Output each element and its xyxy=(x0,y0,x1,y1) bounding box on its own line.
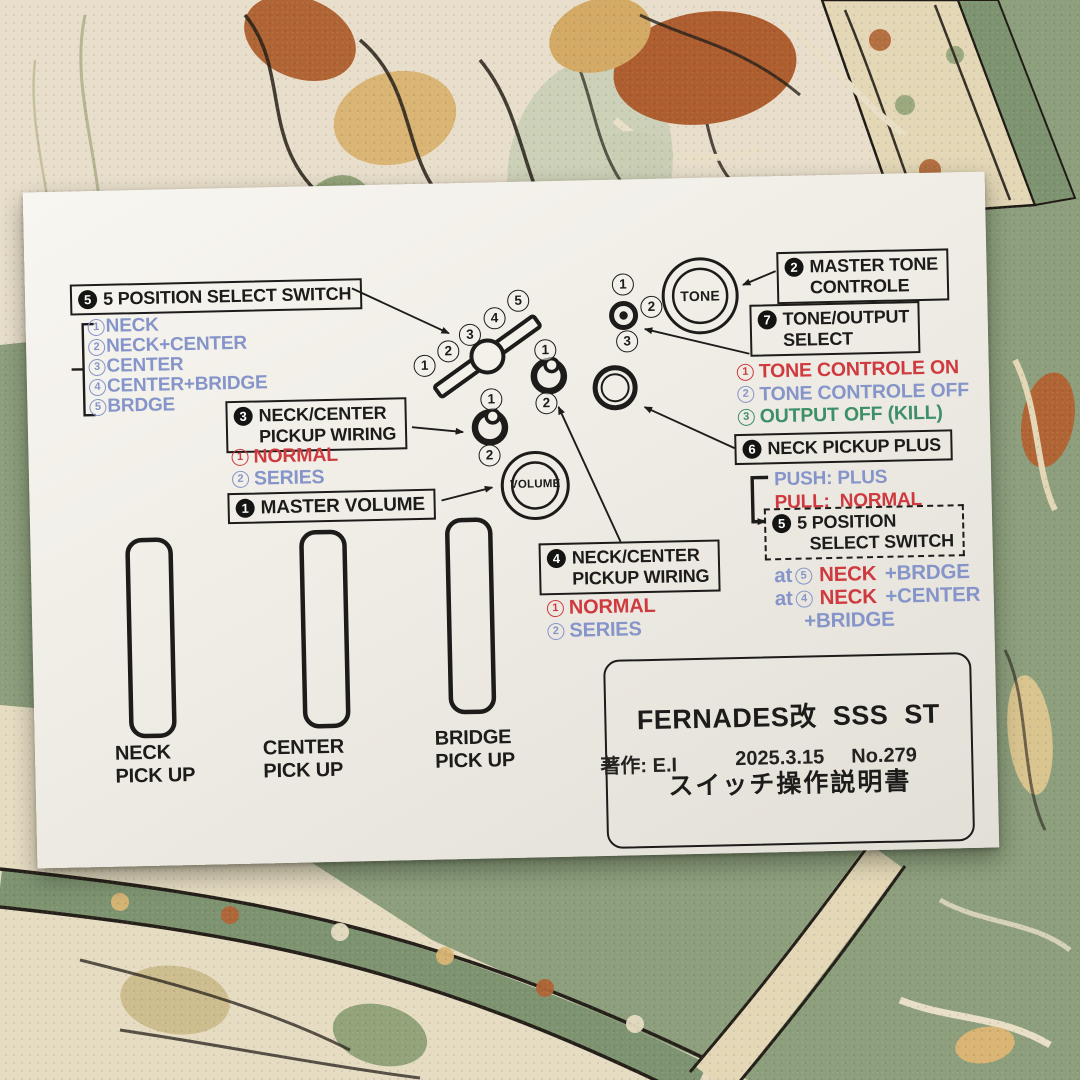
list-item: 2SERIES xyxy=(547,618,656,643)
pickup-label-line: NECK xyxy=(115,741,195,766)
list-item-text: BRDGE xyxy=(107,395,175,416)
label-text: TONE/OUTPUT xyxy=(782,306,909,330)
credit-number: No.279 xyxy=(851,744,917,768)
volume-knob-label: VOLUME xyxy=(495,478,575,492)
badge-4-icon: 4 xyxy=(547,549,566,568)
list-item-text: PUSH: PLUS xyxy=(774,466,888,491)
label-box-neck-pickup-plus: 6 NECK PICKUP PLUS xyxy=(734,429,952,465)
combo-rest: +BRDGE xyxy=(879,560,970,586)
circled-1-icon: 1 xyxy=(737,363,754,380)
circled-4-icon: 4 xyxy=(89,378,106,395)
label-text: NECK PICKUP PLUS xyxy=(767,435,941,460)
wiring-options-4: 1NORMAL 2SERIES xyxy=(547,595,657,643)
list-item-text: SERIES xyxy=(569,618,642,643)
neck-pickup-plus-switch xyxy=(595,367,636,408)
label-box-five-position-select-switch: 5 5 POSITION SELECT SWITCH xyxy=(70,278,363,315)
pickup-label-line: PICK UP xyxy=(435,749,515,774)
tone-output-options: 1TONE CONTROLE ON 2TONE CONTROLE OFF 3OU… xyxy=(737,356,970,429)
label-text: 5 POSITION SELECT SWITCH xyxy=(103,283,352,309)
badge-7-icon: 7 xyxy=(757,310,776,329)
combo-prefix: at xyxy=(775,587,793,611)
combo-prefix: at xyxy=(774,564,792,588)
badge-5-icon: 5 xyxy=(772,514,791,533)
neck-pickup-label: NECK PICK UP xyxy=(115,741,196,789)
pickup-outlines xyxy=(127,519,494,736)
label-text: PICKUP WIRING xyxy=(572,566,710,590)
circled-1-icon: 1 xyxy=(88,318,105,335)
label-text: MASTER TONE xyxy=(809,254,938,278)
center-pickup-label: CENTER PICK UP xyxy=(263,736,345,784)
badge-5-icon: 5 xyxy=(78,290,97,309)
circled-2-icon: 2 xyxy=(232,470,249,487)
list-item-text: NECK xyxy=(105,316,158,337)
title-line-1: FERNADES改 SSS ST xyxy=(610,697,967,737)
list-item: 2SERIES xyxy=(232,466,339,490)
circled-1-icon: 1 xyxy=(231,449,248,466)
bridge-pickup-outline xyxy=(447,519,494,712)
label-text: NECK/CENTER xyxy=(572,545,710,569)
label-box-five-position-dashed: 5 5 POSITION SELECT SWITCH xyxy=(764,504,965,560)
label-text: CONTROLE xyxy=(810,275,939,299)
circled-5-icon: 5 xyxy=(795,567,812,584)
combo-rest: +BRIDGE xyxy=(804,608,895,634)
circled-2-icon: 2 xyxy=(737,386,754,403)
list-item: 1NORMAL xyxy=(231,445,338,469)
list-item: 1NORMAL xyxy=(547,595,656,620)
instruction-sheet: 5 5 POSITION SELECT SWITCH 1NECK 2NECK+C… xyxy=(23,172,1000,869)
circled-3-icon: 3 xyxy=(738,408,755,425)
list-item-text: OUTPUT OFF (KILL) xyxy=(760,402,943,428)
pickup-label-line: PICK UP xyxy=(263,759,345,784)
combo-main: NECK xyxy=(819,562,877,587)
push-pull-pot-3 xyxy=(475,410,506,443)
pickup-label-line: BRIDGE xyxy=(435,726,515,751)
credit-date: 2025.3.15 xyxy=(735,746,824,771)
combo-main: NECK xyxy=(819,585,877,610)
circled-2-icon: 2 xyxy=(547,623,564,640)
list-item: PUSH: PLUS xyxy=(774,465,922,491)
circled-3-icon: 3 xyxy=(88,358,105,375)
center-pickup-outline xyxy=(301,532,348,727)
circled-4-icon: 4 xyxy=(795,590,812,607)
label-text: MASTER VOLUME xyxy=(260,494,425,519)
label-box-neck-center-wiring-4: 4 NECK/CENTER PICKUP WIRING xyxy=(539,539,721,595)
combo-note-cont: +BRIDGE xyxy=(804,608,895,634)
neck-pickup-outline xyxy=(127,539,174,736)
list-item-text: SERIES xyxy=(254,467,325,490)
combo-note-at4: at4NECK +CENTER xyxy=(775,583,981,611)
credit-author: 著作: E.I xyxy=(600,748,677,779)
label-box-tone-output-select: 7 TONE/OUTPUT SELECT xyxy=(749,301,921,357)
circled-5-icon: 5 xyxy=(89,398,106,415)
badge-3-icon: 3 xyxy=(233,407,252,426)
label-text: NECK/CENTER xyxy=(258,402,396,426)
pickup-label-line: PICK UP xyxy=(115,764,195,789)
push-pull-pot-4 xyxy=(533,358,564,391)
combo-rest: +CENTER xyxy=(880,583,981,609)
label-text: SELECT xyxy=(783,327,910,351)
label-box-master-volume: 1 MASTER VOLUME xyxy=(227,489,436,525)
wiring-options-3: 1NORMAL 2SERIES xyxy=(231,445,338,490)
list-item-text: NORMAL xyxy=(569,595,656,620)
list-item-text: NORMAL xyxy=(253,445,338,468)
label-box-master-tone: 2 MASTER TONE CONTROLE xyxy=(776,248,950,304)
badge-2-icon: 2 xyxy=(784,258,803,277)
bridge-pickup-label: BRIDGE PICK UP xyxy=(435,726,516,774)
circled-1-icon: 1 xyxy=(547,600,564,617)
label-text: SELECT SWITCH xyxy=(797,530,954,554)
switch-pivot xyxy=(471,340,504,373)
circled-2-icon: 2 xyxy=(88,338,105,355)
tone-knob-label: TONE xyxy=(670,287,730,304)
scene: 5 5 POSITION SELECT SWITCH 1NECK 2NECK+C… xyxy=(0,0,1080,1080)
badge-1-icon: 1 xyxy=(235,499,254,518)
badge-6-icon: 6 xyxy=(742,440,761,459)
pickup-label-line: CENTER xyxy=(263,736,345,761)
tone-output-toggle xyxy=(611,303,636,328)
